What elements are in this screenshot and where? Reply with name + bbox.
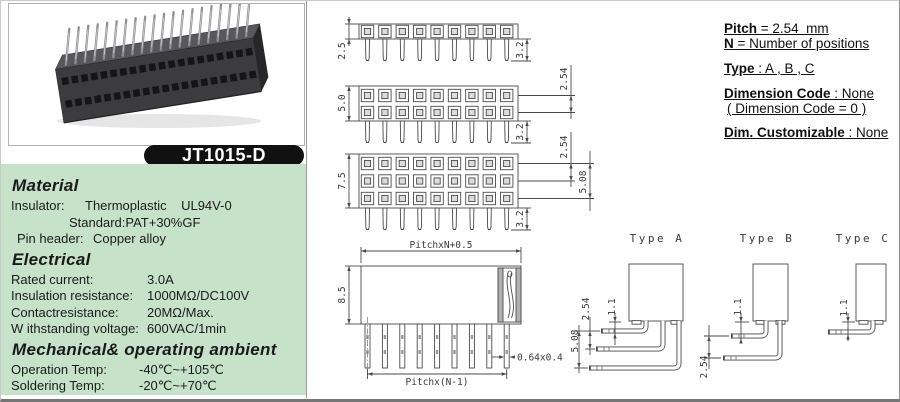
type-c-offset: 1.1 (839, 299, 850, 316)
spec-row: Pin header:Copper alloy (11, 231, 306, 248)
spec-value: 600VAC/1min (147, 321, 226, 338)
type-c-label: Type C (836, 232, 891, 245)
type-a-pitch: 2.54 (581, 297, 592, 320)
dim-side-span: Pitchx(N-1) (406, 377, 469, 388)
spec-label: Rated current: (11, 272, 147, 289)
note-n: N = Number of positions (724, 36, 899, 51)
spec-label (11, 215, 69, 232)
note-pitch: Pitch = 2.54 mm (724, 21, 899, 36)
spec-value: 1000MΩ/DC100V (147, 288, 249, 305)
type-b-label: Type B (740, 232, 795, 245)
dim-view2-height: 5.0 (337, 94, 348, 111)
spec-value: Standard:PAT+30%GF (69, 215, 200, 232)
spec-row: W ithstanding voltage:600VAC/1min (11, 321, 306, 338)
model-number: JT1015-D (182, 145, 266, 165)
note-customizable: Dim. Customizable : None (724, 125, 899, 140)
spec-label: Soldering Temp: (11, 378, 139, 395)
spec-row: Insulator:Thermoplastic UL94V-0 (11, 198, 306, 215)
model-badge: JT1015-D (144, 145, 304, 166)
dim-side-width: PitchxN+0.5 (410, 240, 473, 251)
dim-view3-tail: 3.2 (515, 210, 526, 227)
mechanical-section: Mechanical& operating ambient Operation … (11, 340, 306, 395)
panel-divider (306, 1, 307, 398)
electrical-heading: Electrical (12, 250, 306, 270)
dim-view3-height: 7.5 (337, 172, 348, 189)
dim-view3-rowpitch2: 5.08 (578, 170, 589, 193)
type-b-offset: 1.1 (733, 298, 744, 315)
notes-block: Pitch = 2.54 mm N = Number of positions … (724, 21, 899, 140)
spec-value: 3.0A (147, 272, 174, 289)
note-label: Type (724, 61, 755, 76)
drawing-geometry (345, 17, 594, 379)
spec-panel: Material Insulator:Thermoplastic UL94V-0… (1, 164, 306, 395)
dim-view3-rowpitch: 2.54 (559, 135, 570, 158)
spec-value: Copper alloy (93, 231, 166, 248)
material-section: Material Insulator:Thermoplastic UL94V-0… (11, 176, 306, 248)
spec-label: W ithstanding voltage: (11, 321, 147, 338)
note-type: Type : A , B , C (724, 61, 899, 76)
spec-row: Insulation resistance:1000MΩ/DC100V (11, 288, 306, 305)
type-a-pitch2: 5.08 (571, 329, 581, 352)
type-a-label: Type A (630, 232, 685, 245)
spec-label: Insulator: (11, 198, 85, 215)
dim-view2-rowpitch: 2.54 (559, 67, 570, 90)
spec-value: 20MΩ/Max. (147, 305, 214, 322)
spec-row: Rated current:3.0A (11, 272, 306, 289)
note-text: : A , B , C (755, 61, 815, 76)
datasheet-page: JT1015-D Material Insulator:Thermoplasti… (0, 0, 900, 402)
note-label: N (724, 36, 734, 51)
note-label: Dim. Customizable (724, 125, 845, 140)
type-b-pitch: 2.54 (699, 355, 710, 378)
material-heading: Material (12, 176, 306, 196)
spec-row: Standard:PAT+30%GF (11, 215, 306, 232)
type-geometry (574, 264, 886, 373)
dim-view1-tail: 3.2 (515, 41, 526, 58)
spec-label: Operation Temp: (11, 362, 139, 379)
dimension-drawings: 2.5 3.2 5.0 2.54 3.2 7.5 2.54 5.08 3.2 P… (309, 1, 601, 402)
spec-value: -20℃~+70℃ (139, 378, 217, 395)
note-text: = 2.54 mm (757, 21, 829, 36)
spec-row: Operation Temp:-40℃~+105℃ (11, 362, 306, 379)
note-text: = Number of positions (734, 36, 869, 51)
spec-row: Soldering Temp:-20℃~+70℃ (11, 378, 306, 395)
note-text: ( Dimension Code = 0 ) (727, 101, 866, 116)
product-photo-frame (8, 3, 305, 146)
spec-value: Thermoplastic UL94V-0 (85, 198, 232, 215)
mechanical-heading: Mechanical& operating ambient (12, 340, 306, 360)
spec-label: Pin header: (17, 231, 93, 248)
note-label: Dimension Code (724, 86, 831, 101)
electrical-section: Electrical Rated current:3.0A Insulation… (11, 250, 306, 338)
note-text: : None (831, 86, 875, 101)
note-dimcode: Dimension Code : None (724, 86, 899, 101)
note-label: Pitch (724, 21, 757, 36)
dim-pin-size: 0.64x0.4 (517, 353, 563, 364)
spec-row: Contactresistance:20MΩ/Max. (11, 305, 306, 322)
product-photo (9, 4, 302, 143)
dim-view1-height: 2.5 (337, 42, 348, 59)
spec-label: Contactresistance: (11, 305, 147, 322)
type-a-offset: 1.1 (607, 298, 618, 315)
spec-label: Insulation resistance: (11, 288, 147, 305)
note-text: : None (845, 125, 889, 140)
dim-side-height: 8.5 (337, 286, 348, 303)
type-drawings: Type A Type B Type C 1.1 2.54 5.08 1.1 2… (571, 221, 900, 402)
note-dimcode-eq: ( Dimension Code = 0 ) (724, 101, 899, 116)
spec-value: -40℃~+105℃ (139, 362, 224, 379)
dim-view2-tail: 3.2 (515, 123, 526, 140)
